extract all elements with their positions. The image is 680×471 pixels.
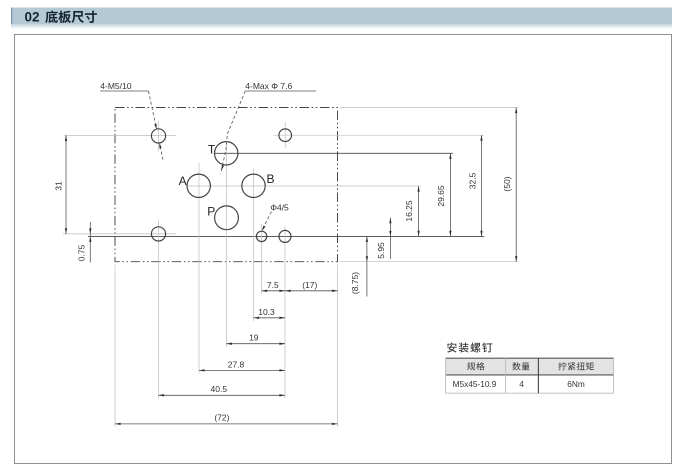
svg-text:4: 4 [519, 379, 524, 389]
svg-text:10.3: 10.3 [258, 307, 275, 317]
svg-text:(72): (72) [214, 413, 229, 423]
svg-text:7.5: 7.5 [267, 280, 279, 290]
svg-text:T: T [208, 143, 216, 157]
svg-text:Φ4/5: Φ4/5 [270, 202, 289, 212]
svg-text:(17): (17) [302, 280, 317, 290]
svg-text:27.8: 27.8 [228, 359, 245, 369]
svg-text:31: 31 [54, 181, 64, 191]
svg-text:B: B [266, 172, 274, 186]
svg-text:19: 19 [249, 332, 259, 342]
svg-text:16.25: 16.25 [404, 200, 414, 222]
svg-text:(50): (50) [502, 176, 512, 191]
svg-text:0.75: 0.75 [76, 244, 86, 261]
svg-text:5.95: 5.95 [376, 242, 386, 259]
svg-text:(8.75): (8.75) [350, 272, 360, 294]
svg-text:02: 02 [25, 10, 40, 25]
svg-text:A: A [179, 174, 187, 188]
svg-text:P: P [207, 204, 215, 218]
svg-text:29.65: 29.65 [436, 185, 446, 207]
svg-text:M5x45-10.9: M5x45-10.9 [453, 379, 497, 389]
svg-text:32.5: 32.5 [467, 172, 477, 189]
svg-text:4-Max Φ 7.6: 4-Max Φ 7.6 [245, 81, 292, 91]
svg-text:6Nm: 6Nm [567, 379, 585, 389]
svg-text:40.5: 40.5 [211, 384, 228, 394]
svg-text:4-M5/10: 4-M5/10 [100, 81, 131, 91]
